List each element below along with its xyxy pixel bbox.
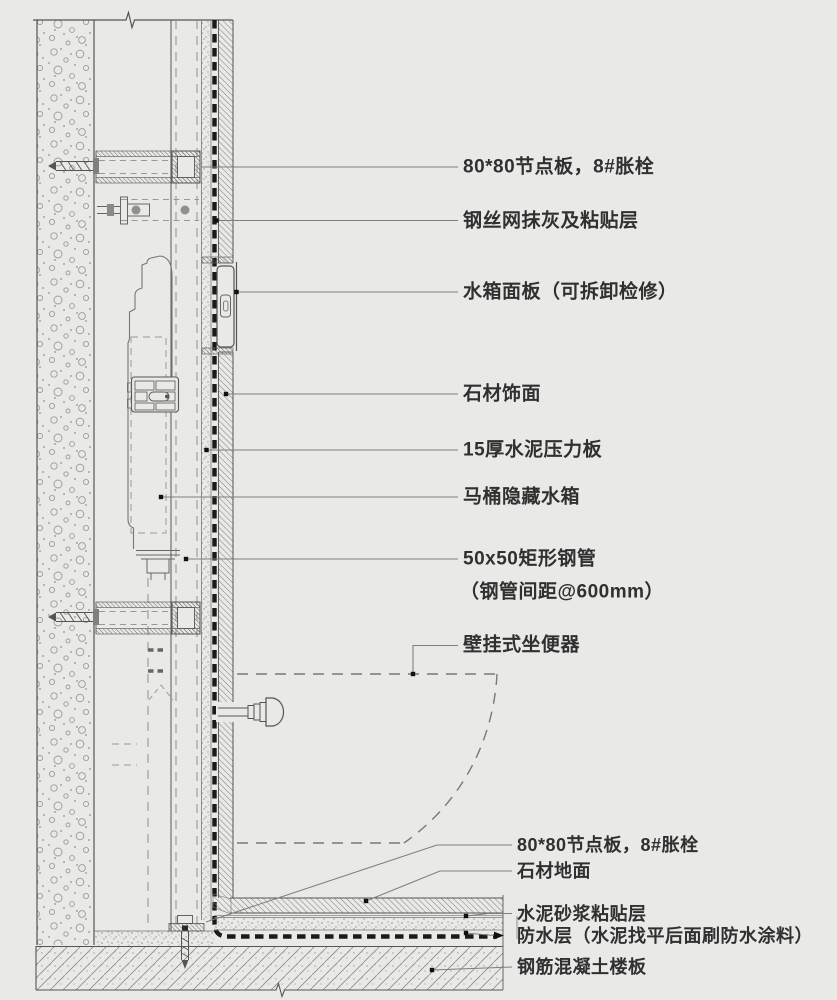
label-node-plate-bottom: 80*80节点板，8#胀栓 [517, 836, 699, 854]
tank-dashed-outline [131, 337, 166, 533]
concealed-tank [128, 256, 180, 580]
label-mortar-bed: 水泥砂浆粘贴层 [517, 905, 647, 923]
cement-pressure-board [202, 20, 212, 920]
label-rc-slab: 钢筋混凝土楼板 [517, 958, 647, 976]
carrier-parts [112, 650, 173, 765]
concrete-wall [37, 20, 94, 945]
label-stone-floor: 石材地面 [517, 862, 591, 880]
label-steel-pipe: 50x50矩形钢管 [463, 550, 596, 569]
node-plate-top [96, 151, 200, 183]
label-node-plate-top: 80*80节点板，8#胀栓 [463, 158, 654, 177]
fixing-bracket [97, 197, 199, 224]
detail-drawing-svg [0, 0, 837, 1000]
label-pipe-spacing: （钢管间距@600mm） [460, 583, 664, 602]
label-concealed-tank: 马桶隐藏水箱 [463, 488, 580, 507]
drain-flange [136, 551, 180, 581]
label-wire-mesh-plaster: 钢丝网抹灰及粘贴层 [463, 212, 639, 231]
label-stone-finish: 石材饰面 [463, 385, 541, 404]
flush-unit [128, 377, 179, 412]
label-access-panel: 水箱面板（可拆卸检修） [463, 283, 678, 302]
membrane-line [215, 20, 498, 937]
label-waterproof-layer: 防水层（水泥找平后面刷防水涂料） [517, 927, 813, 945]
stone-wall-finish [216, 20, 234, 898]
mortar-bed [214, 918, 503, 931]
cavity-screed [95, 931, 215, 947]
label-wall-hung-toilet: 壁挂式坐便器 [463, 636, 580, 655]
label-cement-board: 15厚水泥压力板 [463, 441, 602, 460]
construction-detail-page: 80*80节点板，8#胀栓 钢丝网抹灰及粘贴层 水箱面板（可拆卸检修） 石材饰面… [0, 0, 837, 1000]
floor-assembly [36, 894, 517, 997]
bolt-gap [216, 702, 234, 722]
